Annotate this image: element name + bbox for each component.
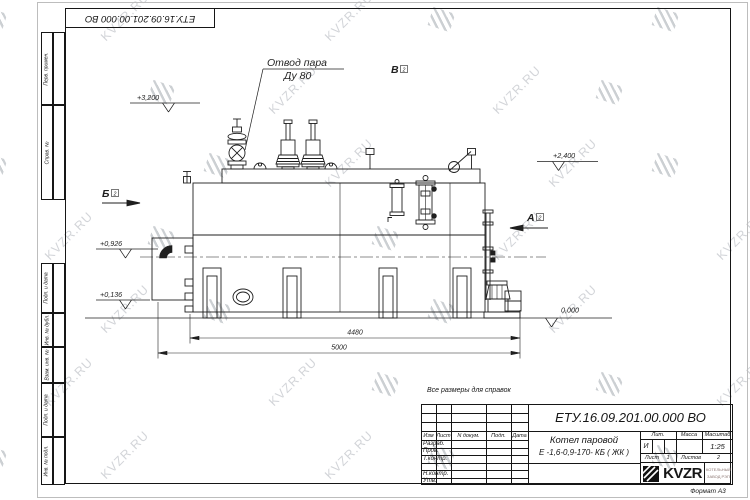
view-label-a: А <box>526 212 535 224</box>
support-legs <box>203 268 471 318</box>
elevation-0926: +0,926 <box>100 239 122 248</box>
view-label-v-ref: 2 <box>402 67 406 73</box>
format-label: Формат А3 <box>683 486 733 496</box>
burner-opening-icon <box>160 246 173 259</box>
col-izm: Изм <box>421 431 436 440</box>
scale-value: 1:25 <box>702 439 733 453</box>
view-label-b: Б <box>102 188 110 200</box>
manhole <box>233 289 253 305</box>
safety-valve-2 <box>301 120 325 169</box>
doc-number: ЕТУ.16.09.201.00.000 ВО <box>528 404 733 431</box>
level-gauge-2 <box>416 176 436 230</box>
sheets-value: 2 <box>706 453 731 462</box>
burner-box <box>152 238 193 300</box>
steam-outlet-valve <box>228 119 246 169</box>
view-label-v: В <box>391 64 399 76</box>
scale-label: Масштаб <box>702 431 733 439</box>
product-name-line1: Котел паровой <box>528 433 640 447</box>
reference-note: Все размеры для справок <box>427 385 511 395</box>
dimension-5000-value: 5000 <box>331 345 347 352</box>
kvzr-logo-sub1: КОТЕЛЬНЫЙ <box>704 466 733 473</box>
callout-steam-outlet-line2: Ду 80 <box>283 70 312 82</box>
col-data: Дата <box>511 431 528 440</box>
top-stamp-box: ЕТУ.16.09.201.00.000 ВО <box>65 8 215 28</box>
kvzr-logo-text: KVZR <box>661 462 704 485</box>
sheets-label: Листов <box>678 453 704 462</box>
role-razrab: Разраб. <box>421 440 451 448</box>
view-label-b-ref: 2 <box>113 191 117 197</box>
elevation-0136: +0,136 <box>100 290 122 299</box>
elevation-2400: +2,400 <box>553 151 575 160</box>
engineering-drawing-page: { "watermark": { "text": "KVZR.RU" }, "f… <box>0 0 750 500</box>
kvzr-logo-icon <box>643 466 659 482</box>
role-nkontr: Н.контр. <box>421 470 451 478</box>
col-podp: Подп. <box>486 431 511 440</box>
elevation-0000: 0,000 <box>561 306 579 315</box>
role-utv: Утв. <box>421 478 451 486</box>
safety-valve-1 <box>276 120 300 169</box>
boiler-casing <box>183 172 485 313</box>
elevation-3200: +3,200 <box>137 93 159 102</box>
lit-label: Лит. <box>640 431 676 439</box>
role-tkontr: Т.контр. <box>421 455 451 463</box>
elevation-marks <box>96 103 598 327</box>
callout-steam-outlet-line1: Отвод пара <box>267 57 327 69</box>
steam-drum-strip <box>222 169 480 183</box>
role-prov: Пров. <box>421 448 451 456</box>
dimension-4480-value: 4480 <box>347 330 363 337</box>
top-stamp-number: ЕТУ.16.09.201.00.000 ВО <box>85 13 195 24</box>
product-name-line2: Е -1,6-0,9-170- КБ ( ЖК ) <box>528 446 640 459</box>
level-gauge-1 <box>388 180 404 223</box>
col-dokum: N докум. <box>451 431 486 440</box>
sheet-label: Лист <box>642 453 662 462</box>
kvzr-logo-sub2: ЗАВОД РЭП <box>704 473 733 480</box>
lit-value: И <box>640 439 652 453</box>
sheet-value: 1 <box>662 453 674 462</box>
mass-label: Масса <box>676 431 702 439</box>
col-list: Лист <box>436 431 451 440</box>
view-label-a-ref: 2 <box>538 215 542 221</box>
